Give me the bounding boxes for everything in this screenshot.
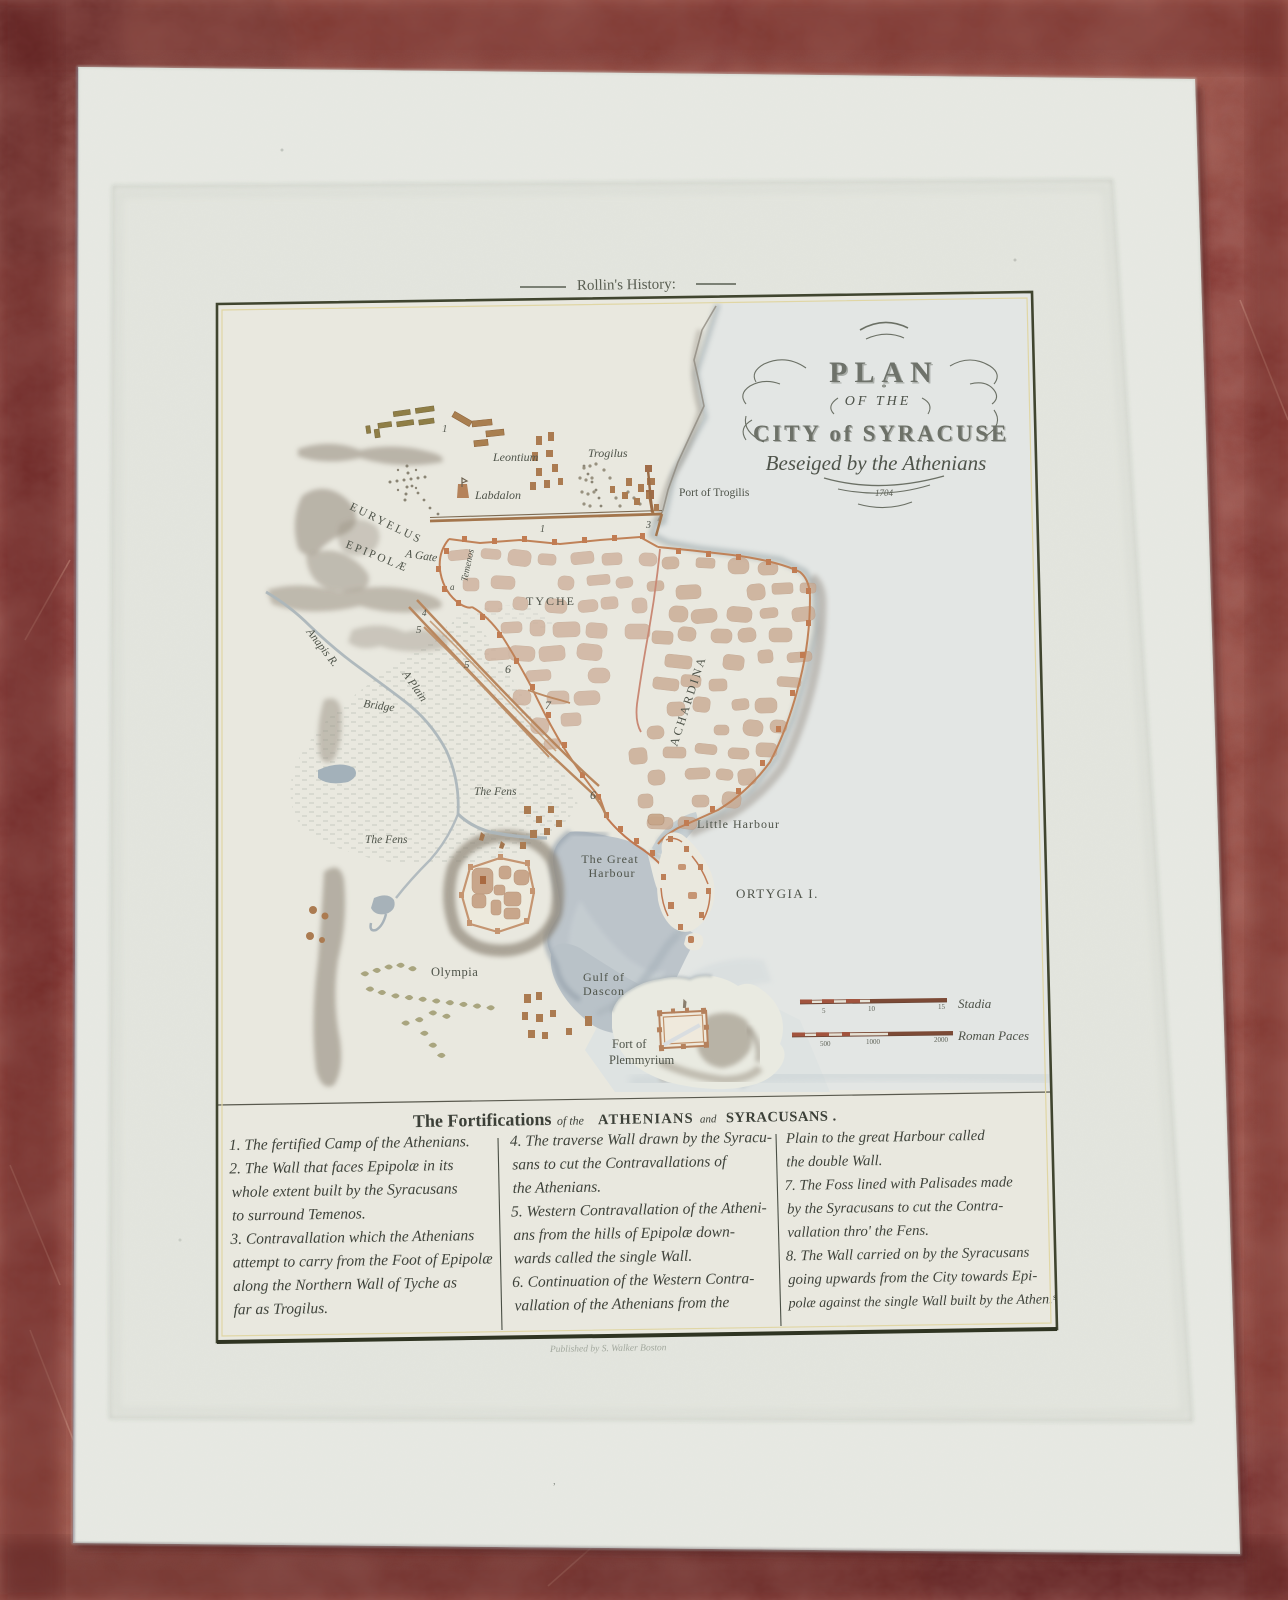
svg-text:7: 7 <box>545 698 552 712</box>
svg-text:SYRACUSANS .: SYRACUSANS . <box>726 1108 837 1126</box>
svg-text:5: 5 <box>416 624 422 636</box>
svg-text:OF THE: OF THE <box>845 394 912 409</box>
svg-text:6: 6 <box>505 662 511 676</box>
svg-text:5: 5 <box>464 659 470 671</box>
svg-text:ans from the hills of Epipolæ: ans from the hills of Epipolæ down- <box>513 1223 735 1243</box>
svg-text:6: 6 <box>590 788 596 802</box>
svg-text:whole extent built by the Syra: whole extent built by the Syracusans <box>232 1180 458 1201</box>
svg-text:Plemmyrium: Plemmyrium <box>609 1053 675 1067</box>
svg-text:The Fens: The Fens <box>365 834 408 846</box>
svg-text:,: , <box>553 1475 556 1487</box>
svg-text:and: and <box>700 1113 717 1125</box>
svg-text:the double Wall.: the double Wall. <box>786 1153 882 1171</box>
svg-text:the Athenians.: the Athenians. <box>513 1179 602 1197</box>
svg-text:ATHENIANS: ATHENIANS <box>598 1111 694 1129</box>
svg-text:Olympia: Olympia <box>431 965 478 979</box>
svg-text:a: a <box>450 582 455 592</box>
svg-text:to surround Temenos.: to surround Temenos. <box>232 1205 366 1224</box>
svg-text:2. The Wall that faces Epipolæ: 2. The Wall that faces Epipolæ in its <box>229 1157 453 1178</box>
svg-text:ORTYGIA I.: ORTYGIA I. <box>736 886 819 901</box>
svg-text:3: 3 <box>645 520 651 531</box>
svg-text:TYCHE: TYCHE <box>526 594 576 608</box>
svg-text:far as Trogilus.: far as Trogilus. <box>233 1300 328 1318</box>
svg-text:vallation thro' the Fens.: vallation thro' the Fens. <box>787 1223 929 1241</box>
svg-text:The Fortifications: The Fortifications <box>413 1109 552 1131</box>
svg-text:along the Northern Wall of Tyc: along the Northern Wall of Tyche as <box>233 1274 457 1295</box>
svg-text:1: 1 <box>442 423 448 435</box>
svg-text:1704: 1704 <box>875 488 894 498</box>
svg-text:Rollin's History:: Rollin's History: <box>577 276 676 294</box>
svg-text:Published by S. Walker Boston: Published by S. Walker Boston <box>549 1343 667 1355</box>
svg-text:Labdalon: Labdalon <box>474 488 521 502</box>
svg-text:Little Harbour: Little Harbour <box>697 817 780 831</box>
svg-text:1: 1 <box>540 524 545 535</box>
svg-text:The Fens: The Fens <box>474 786 517 798</box>
svg-text:4: 4 <box>422 608 427 618</box>
svg-text:Beseiged by the Athenians: Beseiged by the Athenians <box>766 451 987 475</box>
svg-text:Stadia: Stadia <box>958 996 992 1011</box>
svg-text:Dascon: Dascon <box>583 984 625 998</box>
svg-text:wards called the single Wall.: wards called the single Wall. <box>514 1248 693 1268</box>
svg-text:sans to cut the Contravallatio: sans to cut the Contravallations of <box>512 1153 729 1173</box>
svg-text:Port of Trogilis: Port of Trogilis <box>679 487 750 499</box>
svg-text:vallation of the Athenians fro: vallation of the Athenians from the <box>514 1294 729 1314</box>
svg-text:15: 15 <box>938 1003 946 1011</box>
svg-text:500: 500 <box>820 1040 831 1048</box>
svg-text:*: * <box>882 383 887 394</box>
svg-text:1000: 1000 <box>866 1038 881 1046</box>
svg-text:Fort of: Fort of <box>612 1037 647 1051</box>
svg-text:Harbour: Harbour <box>589 866 636 880</box>
svg-text:2000: 2000 <box>934 1036 949 1044</box>
svg-text:10: 10 <box>868 1005 876 1013</box>
svg-text:Trogilus: Trogilus <box>588 446 628 460</box>
svg-text:5: 5 <box>822 1007 826 1015</box>
svg-text:CITY of SYRACUSE: CITY of SYRACUSE <box>753 421 1009 446</box>
svg-text:Leontium: Leontium <box>492 450 539 464</box>
svg-text:Plain to the great Harbour cal: Plain to the great Harbour called <box>785 1128 986 1147</box>
svg-text:Roman Paces: Roman Paces <box>957 1028 1029 1043</box>
svg-text:of the: of the <box>557 1113 585 1127</box>
svg-text:The Great: The Great <box>581 852 638 866</box>
svg-text:Gulf of: Gulf of <box>583 970 625 984</box>
svg-text:by the Syracusans to cut the C: by the Syracusans to cut the Contra- <box>787 1198 1003 1217</box>
